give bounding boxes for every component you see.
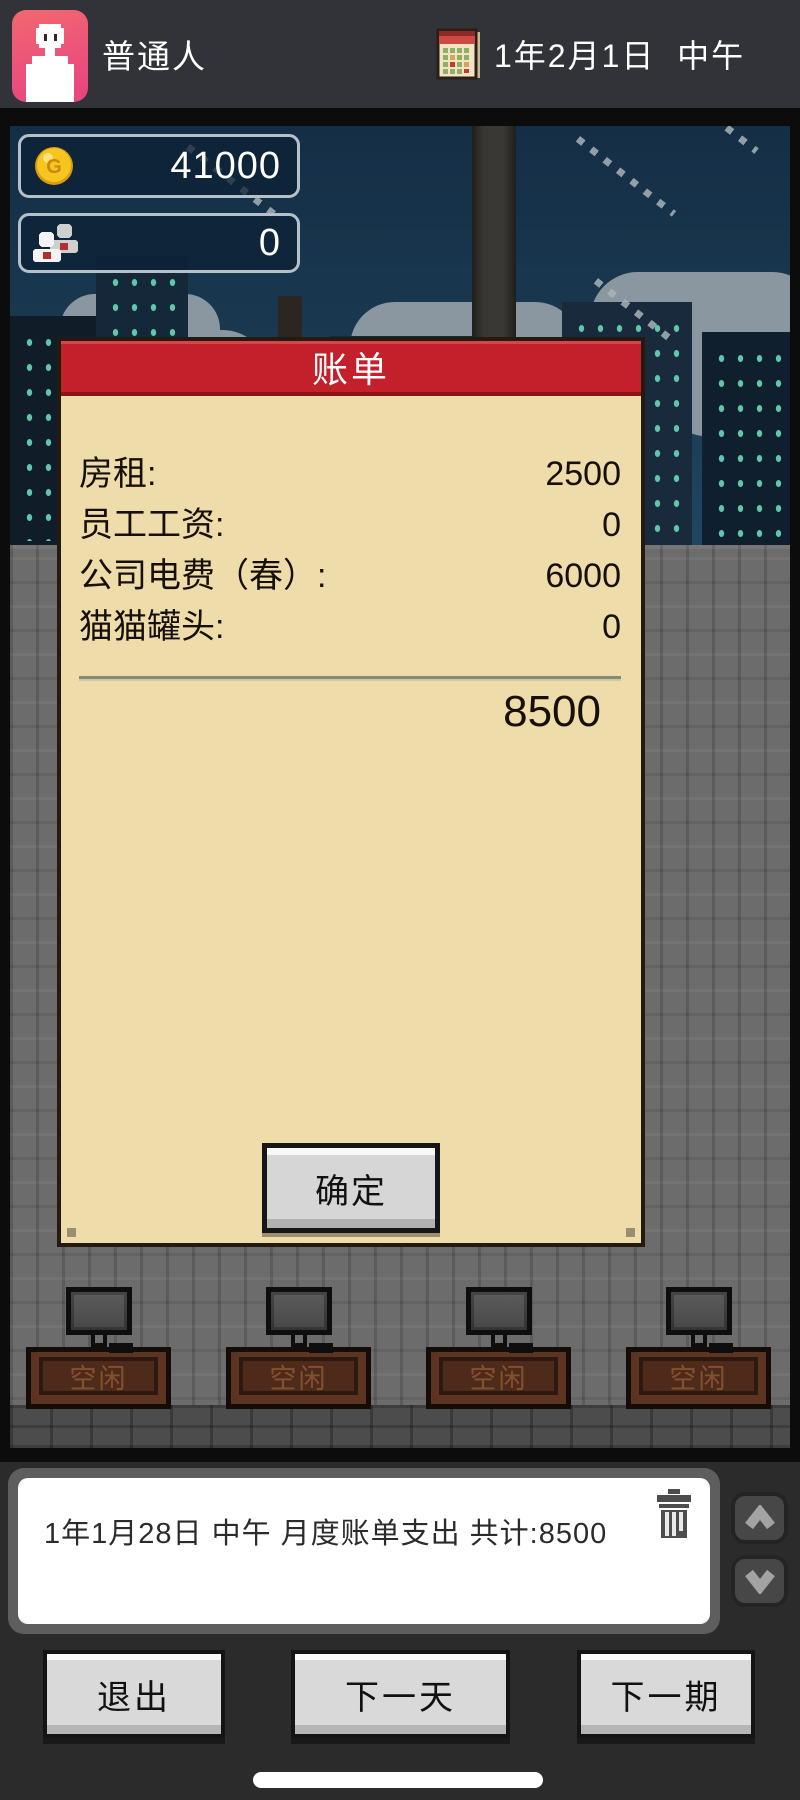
bill-item-value: 6000 [545,557,621,596]
bill-total: 8500 [79,681,621,737]
pixel-trail [698,126,759,154]
bill-dialog-title: 账单 [312,341,390,393]
game-screen: 普通人 1年2月1日 中午 [0,0,800,1800]
monitor-icon [266,1287,332,1335]
exit-button[interactable]: 退出 [43,1650,225,1738]
desk-status-label: 空闲 [39,1357,158,1395]
confirm-button[interactable]: 确定 [262,1143,440,1233]
monitor-feet [309,1343,333,1353]
desk-body: 空闲 [26,1347,171,1409]
chevron-up-icon [744,1505,776,1531]
bill-items-list: 房租: 2500 员工工资: 0 公司电费（春）: 6000 猫猫罐头: 0 8… [61,396,641,737]
monitor-icon [66,1287,132,1335]
player-title: 普通人 [102,0,207,108]
window-frame-top [0,108,800,126]
desk-slot-4[interactable]: 空闲 [626,1287,771,1407]
monitor-feet [509,1343,533,1353]
pixel-corner [626,1228,635,1237]
monitor-stand [691,1335,707,1347]
people-icon [33,222,79,264]
desk-status-label: 空闲 [239,1357,358,1395]
bill-item-label: 员工工资: [79,497,224,546]
bill-dialog: 账单 房租: 2500 员工工资: 0 公司电费（春）: 6000 猫猫罐头: … [57,337,645,1247]
window-frame-right [790,108,800,1462]
window-frame-bottom [0,1448,800,1462]
monitor-stand [91,1335,107,1347]
next-day-button[interactable]: 下一天 [291,1650,510,1738]
pixel-trail [576,136,676,217]
staff-value: 0 [79,222,281,265]
monitor-feet [109,1343,133,1353]
top-bar: 普通人 1年2月1日 中午 [0,0,800,108]
desk-slot-2[interactable]: 空闲 [226,1287,371,1407]
coin-icon: G [33,145,75,187]
log-entry: 1年1月28日 中午 月度账单支出 共计:8500 [44,1510,620,1552]
trash-icon [654,1489,694,1541]
monitor-icon [466,1287,532,1335]
bill-item-value: 0 [602,608,621,647]
bill-dialog-header: 账单 [61,341,641,396]
bill-item-label: 猫猫罐头: [79,599,224,648]
window-frame-left [0,108,10,1462]
monitor-icon [666,1287,732,1335]
gold-stat-box: G 41000 [18,134,300,198]
svg-text:G: G [46,156,62,178]
bill-item-value: 0 [602,506,621,545]
staff-stat-box: 0 [18,213,300,273]
event-log-box: 1年1月28日 中午 月度账单支出 共计:8500 [18,1478,710,1624]
bill-item-label: 房租: [79,446,156,495]
bill-row: 公司电费（春）: 6000 [79,548,621,599]
date-text: 1年2月1日 中午 [494,31,745,77]
desk-body: 空闲 [626,1347,771,1409]
gold-value: 41000 [75,145,281,188]
desk-status-label: 空闲 [439,1357,558,1395]
bill-row: 猫猫罐头: 0 [79,599,621,650]
monitor-feet [709,1343,733,1353]
desk-body: 空闲 [426,1347,571,1409]
chevron-down-icon [744,1568,776,1594]
desk-status-label: 空闲 [639,1357,758,1395]
event-log-panel: 1年1月28日 中午 月度账单支出 共计:8500 [8,1468,720,1634]
desk-slot-1[interactable]: 空闲 [26,1287,171,1407]
pixel-corner [67,1228,76,1237]
desk-body: 空闲 [226,1347,371,1409]
office-floor [10,1405,790,1448]
monitor-stand [491,1335,507,1347]
monitor-stand [291,1335,307,1347]
person-icon [12,10,88,102]
log-scroll-up-button[interactable] [731,1492,788,1544]
clear-log-button[interactable] [652,1488,696,1544]
avatar[interactable] [12,10,88,102]
bill-item-label: 公司电费（春）: [79,548,326,597]
date-display: 1年2月1日 中午 [436,0,745,108]
calendar-icon [436,28,482,80]
desk-slot-3[interactable]: 空闲 [426,1287,571,1407]
home-indicator[interactable] [253,1772,543,1788]
building [702,332,790,545]
bill-row: 员工工资: 0 [79,497,621,548]
bill-row: 房租: 2500 [79,446,621,497]
next-period-button[interactable]: 下一期 [577,1650,755,1738]
log-scroll-down-button[interactable] [731,1555,788,1607]
bill-item-value: 2500 [545,455,621,494]
